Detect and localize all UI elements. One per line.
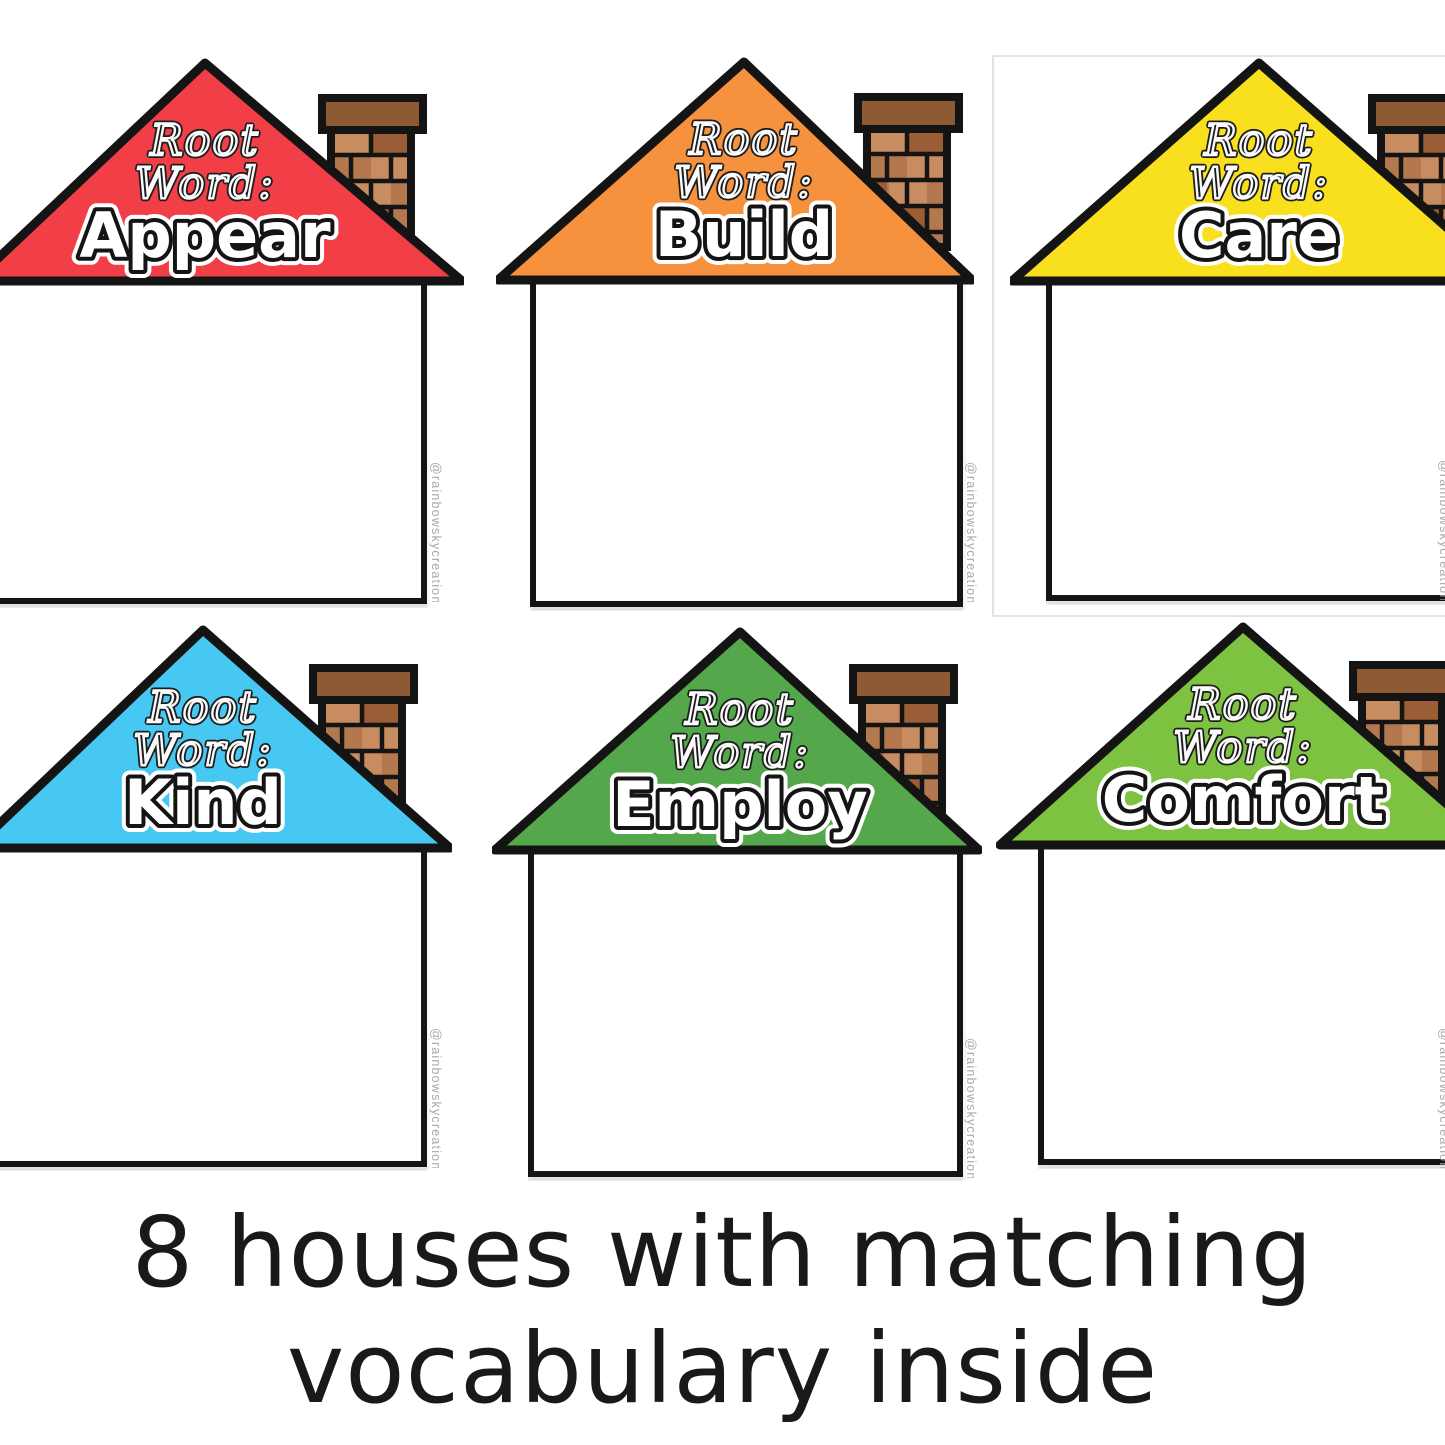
house-body-appear: [0, 277, 427, 604]
watermark-credit: @rainbowskycreations: [429, 462, 443, 602]
root-word-comfort: Comfort: [1102, 763, 1384, 836]
caption-line-1: 8 houses with matching: [0, 1196, 1445, 1309]
root-word-build: Build: [655, 198, 833, 271]
house-roof-employ: Root Root Word: Word: Employ Employ: [492, 624, 982, 856]
product-preview-image: @rainbowskycreations Root Root Word: Wor…: [0, 0, 1445, 1445]
watermark-credit: @rainbowskycreations: [429, 1028, 443, 1168]
root-word-employ: Employ: [612, 768, 868, 841]
house-roof-appear: Root Root Word: Word: Appear Appear: [0, 55, 464, 287]
house-roof-care: Root Root Word: Word: Care Care: [1010, 55, 1445, 287]
house-roof-build: Root Root Word: Word: Build Build: [496, 54, 974, 286]
root-word-kind: Kind: [124, 766, 282, 839]
watermark-credit: @rainbowskycreations: [1437, 460, 1445, 600]
house-body-comfort: [1038, 841, 1445, 1165]
watermark-credit: @rainbowskycreations: [964, 462, 978, 602]
house-roof-comfort: Root Root Word: Word: Comfort Comfort: [996, 619, 1445, 851]
root-word-care: Care: [1179, 199, 1339, 272]
house-body-kind: [0, 844, 427, 1167]
root-word-appear: Appear: [79, 199, 331, 272]
caption-line-2: vocabulary inside: [0, 1312, 1445, 1425]
watermark-credit: @rainbowskycreations: [964, 1038, 978, 1178]
house-body-build: [530, 277, 963, 607]
watermark-credit: @rainbowskycreations: [1437, 1028, 1445, 1168]
house-body-employ: [528, 846, 963, 1177]
house-roof-kind: Root Root Word: Word: Kind Kind: [0, 622, 452, 854]
house-body-care: [1046, 277, 1445, 601]
